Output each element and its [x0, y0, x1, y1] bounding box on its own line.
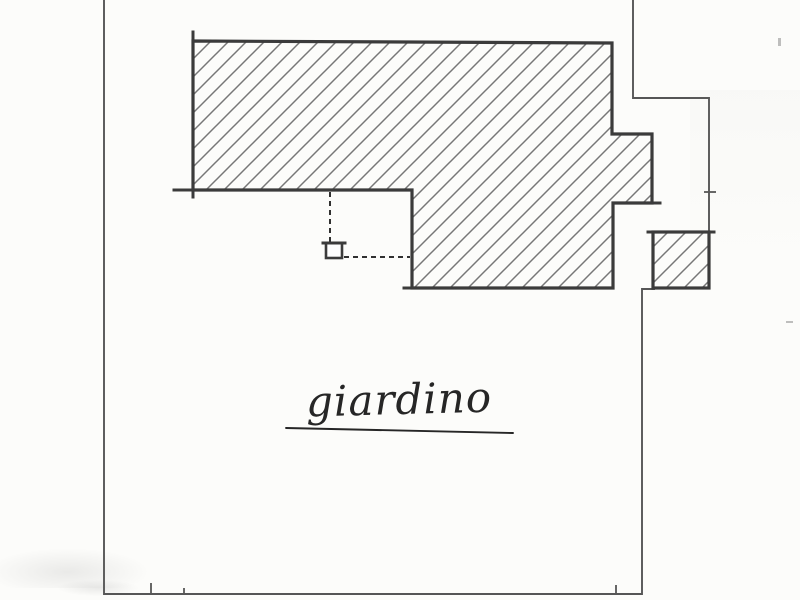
site-plan-drawing [0, 0, 800, 600]
scan-speck [786, 321, 793, 323]
well-symbol [326, 243, 342, 258]
scan-speck [778, 38, 781, 46]
garden-label-underline [286, 428, 513, 433]
annex-footprint-hatched [653, 232, 709, 288]
building-footprint-hatched [193, 41, 652, 288]
scanned-site-plan-page: giardino [0, 0, 800, 600]
garden-label-text: giardino [305, 377, 492, 424]
